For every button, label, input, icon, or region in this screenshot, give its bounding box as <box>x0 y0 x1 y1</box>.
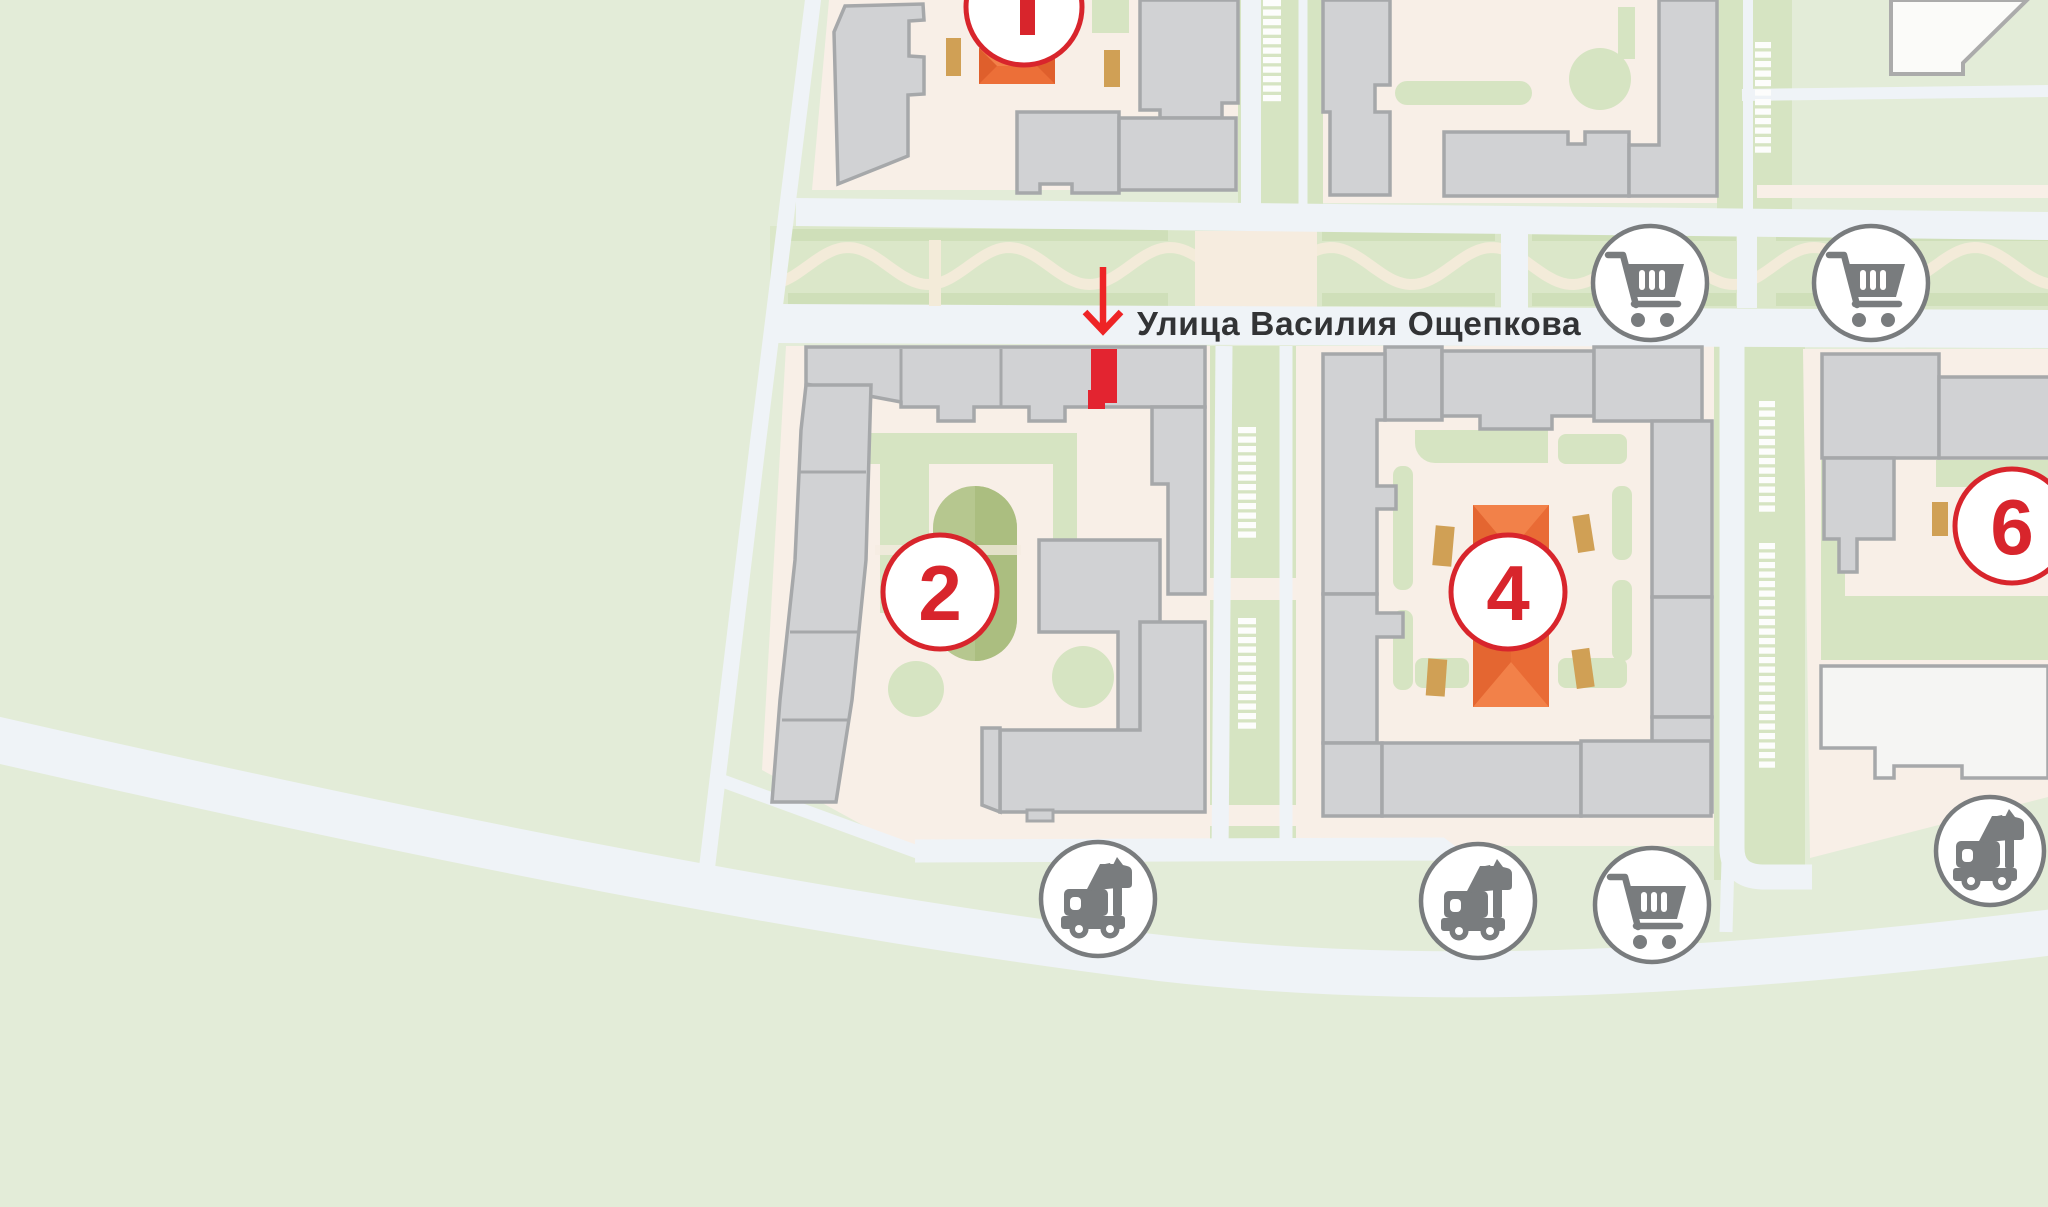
svg-text:4: 4 <box>1486 549 1529 637</box>
svg-text:2: 2 <box>918 549 961 637</box>
svg-text:6: 6 <box>1990 483 2033 571</box>
svg-text:Улица Василия Ощепкова: Улица Василия Ощепкова <box>1137 306 1581 343</box>
